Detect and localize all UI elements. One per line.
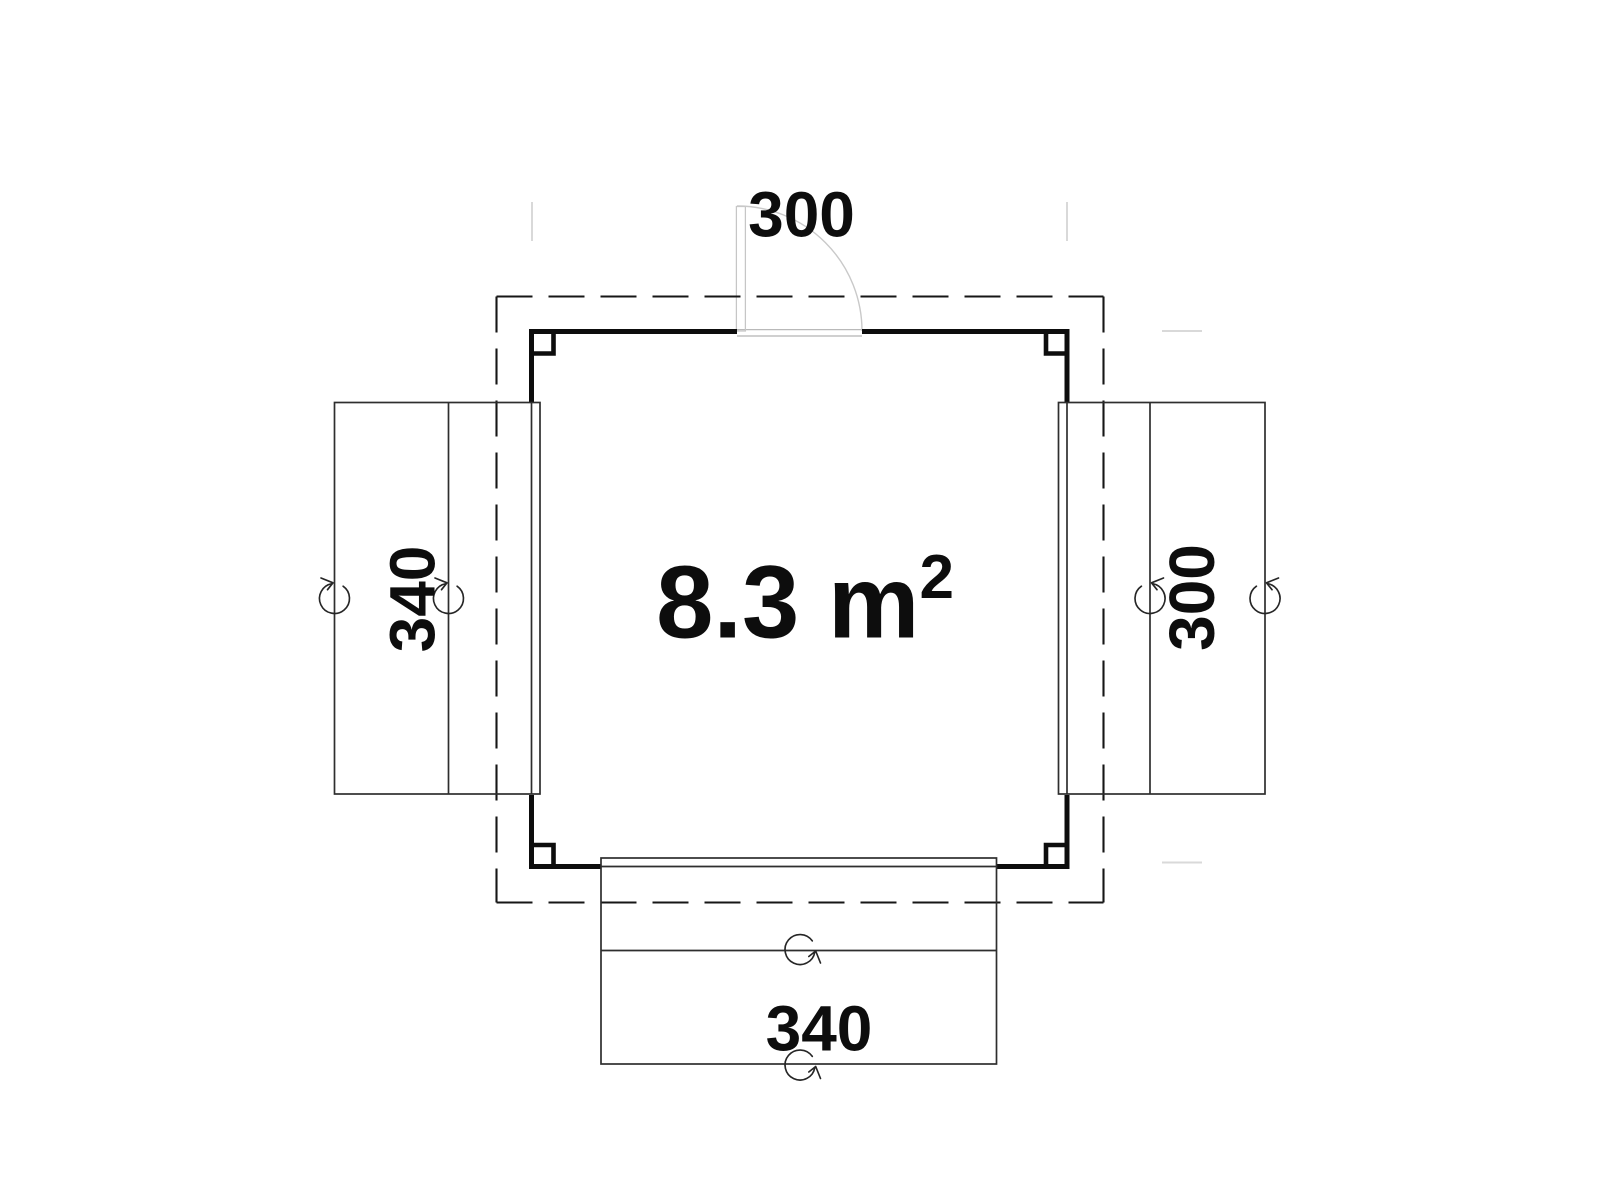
svg-text:300: 300 xyxy=(748,179,855,251)
svg-text:340: 340 xyxy=(766,993,873,1065)
svg-text:8.3 m2: 8.3 m2 xyxy=(656,543,954,660)
svg-text:300: 300 xyxy=(1156,544,1228,651)
svg-text:340: 340 xyxy=(377,546,449,653)
